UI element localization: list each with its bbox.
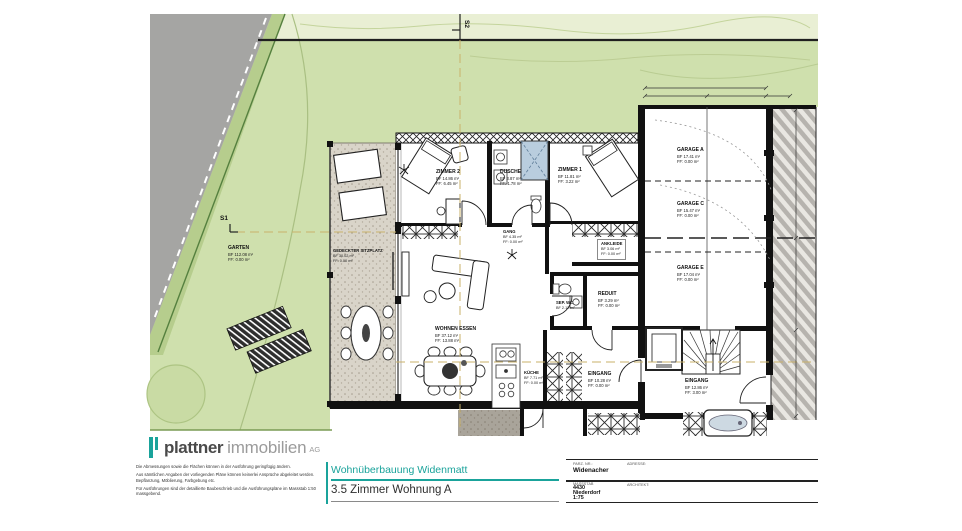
disclaimer-line: Für Ausführungen sind der detaillierte B… — [136, 486, 334, 497]
room-label-garage-a: GARAGE A BF 17.41 m² FF: 0.00 m² — [677, 147, 704, 165]
plan-title: 3.5 Zimmer Wohnung A — [331, 484, 452, 496]
room-name: EINGANG — [588, 371, 611, 377]
room-name: GARTEN — [228, 245, 249, 251]
field-rule — [566, 459, 818, 460]
room-name: GARAGE A — [677, 147, 704, 153]
plan-title-underline — [331, 501, 559, 502]
section-marker-s2: S2 — [463, 20, 470, 28]
room-label-zimmer1: ZIMMER 1 BF 11.81 m² FF: 3.22 m² — [558, 167, 582, 185]
logo-legal: AG — [309, 445, 320, 454]
room-ff: FF: 0.00 m² — [524, 381, 544, 386]
room-name: DUSCHE — [500, 169, 521, 175]
street-value: Widenacher — [573, 468, 609, 475]
room-name: ZIMMER 1 — [558, 167, 582, 173]
room-label-garage-e: GARAGE E BF 17.04 m² FF: 0.00 m² — [677, 265, 704, 283]
room-name: ZIMMER 2 — [436, 169, 460, 175]
room-ff: FF: 0.00 m² — [333, 259, 383, 264]
terrace — [327, 141, 396, 408]
room-name: ANKLEIDE — [601, 241, 622, 246]
room-ff: FF: 13.88 m² — [435, 338, 476, 344]
room-label-garage-c: GARAGE C BF 15.47 m² FF: 0.00 m² — [677, 201, 704, 219]
room-name: SEP. WC — [556, 300, 573, 305]
room-ff: FF: 1.78 m² — [500, 181, 522, 187]
room-label-ankleide: ANKLEIDE BF 3.06 m² FF: 0.00 m² — [597, 239, 626, 260]
room-name: WOHNEN ESSEN — [435, 326, 476, 332]
room-name: EINGANG — [685, 378, 708, 384]
kitchen-counter — [492, 344, 520, 408]
logo-name: plattner — [164, 437, 223, 458]
shower — [521, 141, 548, 180]
project-underline — [331, 479, 559, 481]
room-name: GEDECKTER SITZPLATZ — [333, 248, 383, 253]
tree — [147, 365, 205, 423]
room-label-sep-wc: SEP. WC BF 2.12 m² — [556, 300, 575, 311]
room-label-garten: GARTEN BF 112.08 m² FF: 0.00 m² — [228, 245, 253, 263]
room-label-kueche: KÜCHE BF 7.71 m² FF: 0.00 m² — [524, 370, 544, 386]
staircase — [682, 330, 740, 374]
room-label-gang: GANG BF 4.35 m² FF: 0.00 m² — [503, 229, 523, 245]
room-ff: FF: 3.00 m² — [685, 390, 708, 396]
terrace-dining-set — [341, 306, 393, 360]
room-label-dusche: DUSCHE BF 3.87 m² FF: 1.78 m² — [500, 169, 522, 187]
room-label-wohnen-essen: WOHNEN ESSEN BF 37.12 m² FF: 13.88 m² — [435, 326, 476, 344]
room-ff: FF: 6.45 m² — [436, 181, 460, 187]
adresse-label: ADRESSE: — [627, 462, 646, 466]
room-bf: BF 2.12 m² — [556, 306, 575, 311]
room-label-reduit: REDUIT BF 3.29 m² FF: 0.00 m² — [598, 291, 620, 309]
section-marker-s1: S1 — [220, 215, 228, 222]
parz-nr-label: PARZ. NR.: — [573, 462, 593, 466]
ramp-hatch — [771, 107, 816, 420]
room-name: GARAGE C — [677, 201, 704, 207]
elevator — [646, 328, 682, 370]
room-name: GANG — [503, 229, 516, 234]
architekt-label: ARCHITEKT: — [627, 483, 649, 487]
disclaimer-block: Die Abmessungen sowie die Flächen können… — [136, 464, 334, 499]
disclaimer-line: Die Abmessungen sowie die Flächen können… — [136, 464, 334, 469]
room-ff: FF: 0.00 m² — [677, 277, 704, 283]
disclaimer-line: Aus sämtlichen Angaben der vorliegenden … — [136, 472, 334, 483]
room-ff: FF: 3.22 m² — [558, 179, 582, 185]
field-rule — [566, 502, 818, 503]
room-name: REDUIT — [598, 291, 617, 297]
bathtub — [704, 410, 752, 436]
scale-value: 1:75 — [573, 496, 584, 502]
room-ff: FF: 0.00 m² — [677, 213, 704, 219]
site-plan-drawing — [0, 0, 962, 531]
room-ff: FF: 0.00 m² — [601, 252, 622, 257]
titleblock-divider — [326, 462, 328, 504]
room-label-eingang-wohnung: EINGANG BF 10.28 m² FF: 0.00 m² — [588, 371, 611, 389]
room-name: KÜCHE — [524, 370, 539, 375]
room-ff: FF: 0.00 m² — [598, 303, 620, 309]
project-title: Wohnüberbauung Widenmatt — [331, 464, 467, 476]
logo-bar-icon — [149, 437, 153, 458]
room-label-sitzplatz: GEDECKTER SITZPLATZ BF 30.02 m² FF: 0.00… — [333, 248, 383, 264]
room-name: GARAGE E — [677, 265, 704, 271]
room-ff: FF: 0.00 m² — [503, 240, 523, 245]
room-ff: FF: 0.00 m² — [677, 159, 704, 165]
field-rule — [566, 480, 818, 482]
room-ff: FF: 0.00 m² — [588, 383, 611, 389]
floorplan-page: GARTEN BF 112.08 m² FF: 0.00 m² GEDECKTE… — [0, 0, 962, 531]
room-label-eingang-haus: EINGANG BF 12.86 m² FF: 3.00 m² — [685, 378, 708, 396]
logo-suffix: immobilien — [227, 437, 306, 458]
room-ff: FF: 0.00 m² — [228, 257, 253, 263]
plattner-logo: plattner immobilien AG — [149, 437, 320, 458]
room-label-zimmer2: ZIMMER 2 BF 14.86 m² FF: 6.45 m² — [436, 169, 460, 187]
logo-bar-icon — [155, 437, 158, 450]
